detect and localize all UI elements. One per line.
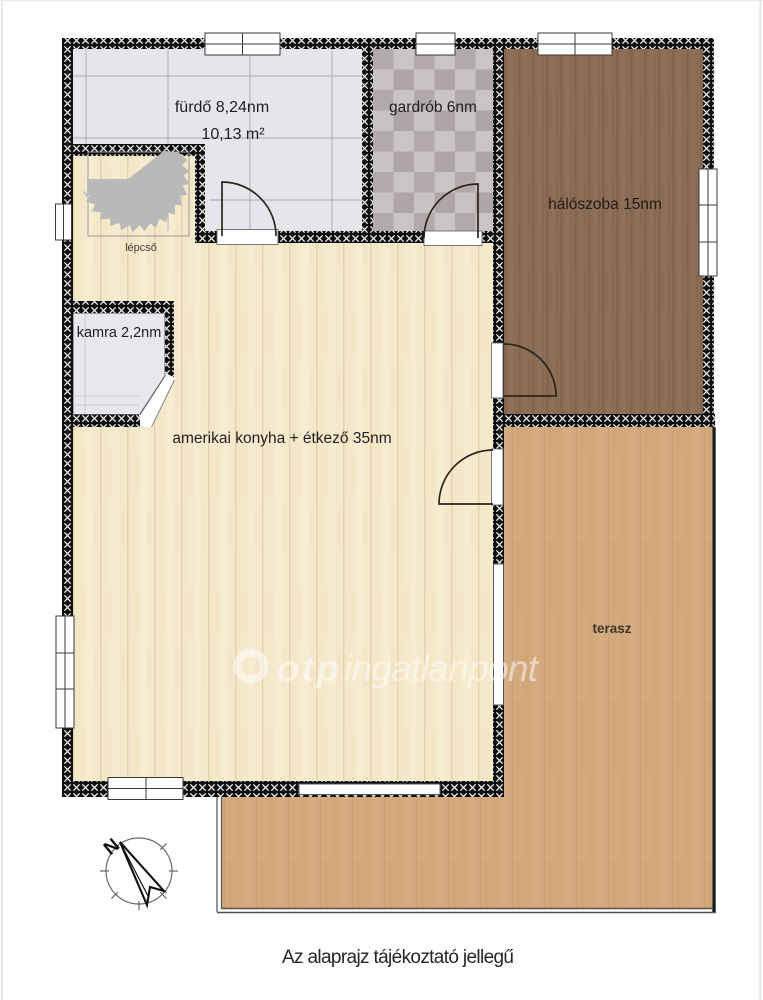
svg-text:10,13 m²: 10,13 m²: [201, 126, 265, 143]
svg-text:hálószoba 15nm: hálószoba 15nm: [548, 196, 662, 213]
svg-text:terasz: terasz: [592, 621, 631, 636]
svg-text:otp: otp: [277, 648, 339, 689]
svg-text:ingatlanpont: ingatlanpont: [344, 648, 540, 689]
svg-text:Az alaprajz tájékoztató jelleg: Az alaprajz tájékoztató jellegű: [282, 947, 514, 968]
svg-text:kamra 2,2nm: kamra 2,2nm: [77, 325, 162, 341]
svg-text:amerikai konyha + étkező 35nm: amerikai konyha + étkező 35nm: [172, 430, 391, 447]
svg-text:fürdő 8,24nm: fürdő 8,24nm: [175, 99, 269, 116]
svg-text:gardrób 6nm: gardrób 6nm: [389, 99, 477, 116]
svg-text:lépcső: lépcső: [125, 242, 157, 254]
